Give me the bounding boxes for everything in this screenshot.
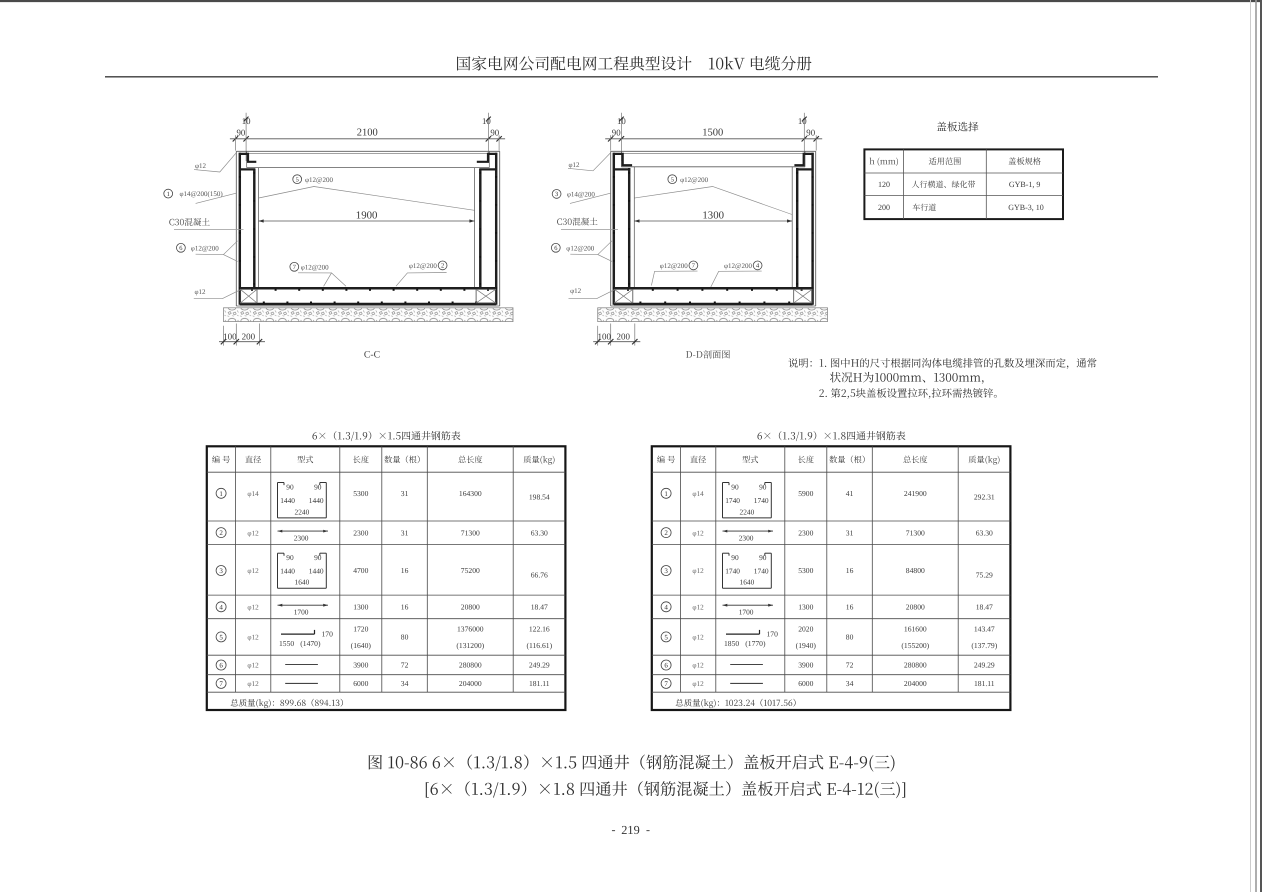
svg-text:1440: 1440 <box>280 567 295 576</box>
svg-text:(116.61): (116.61) <box>526 641 552 650</box>
svg-text:(1770): (1770) <box>745 639 766 648</box>
svg-text:10: 10 <box>617 116 626 126</box>
svg-text:90: 90 <box>731 482 739 491</box>
svg-text:(1470): (1470) <box>300 639 321 648</box>
svg-text:φ14: φ14 <box>247 490 259 498</box>
svg-text:φ12: φ12 <box>195 162 207 170</box>
svg-text:170: 170 <box>322 630 334 639</box>
svg-text:63.30: 63.30 <box>531 528 548 537</box>
svg-text:1700: 1700 <box>294 607 309 616</box>
svg-text:164300: 164300 <box>459 489 482 498</box>
svg-text:90: 90 <box>286 482 294 491</box>
svg-text:7: 7 <box>664 680 668 688</box>
svg-text:(1640): (1640) <box>351 641 372 650</box>
svg-text:241900: 241900 <box>904 489 927 498</box>
svg-text:90: 90 <box>314 553 322 562</box>
svg-text:10: 10 <box>482 116 491 126</box>
svg-text:84800: 84800 <box>906 566 925 575</box>
svg-text:280800: 280800 <box>459 661 482 670</box>
svg-text:5: 5 <box>219 633 223 641</box>
svg-text:31: 31 <box>401 528 409 537</box>
svg-text:143.47: 143.47 <box>974 624 995 633</box>
svg-text:219: 219 <box>621 823 639 837</box>
svg-text:249.29: 249.29 <box>974 661 995 670</box>
svg-text:1: 1 <box>664 490 668 498</box>
svg-text:2020: 2020 <box>798 624 813 633</box>
svg-text:φ12: φ12 <box>692 567 704 575</box>
svg-text:1720: 1720 <box>353 624 368 633</box>
svg-text:7: 7 <box>219 680 223 688</box>
svg-text:φ12: φ12 <box>692 634 704 642</box>
svg-text:φ14@200(150): φ14@200(150) <box>180 190 224 198</box>
svg-text:φ12@200: φ12@200 <box>724 262 752 270</box>
svg-text:1440: 1440 <box>309 496 324 505</box>
svg-text:6000: 6000 <box>798 679 813 688</box>
svg-text:4: 4 <box>219 603 223 611</box>
svg-text:5: 5 <box>664 633 668 641</box>
svg-text:90: 90 <box>237 127 246 137</box>
svg-text:φ12: φ12 <box>692 604 704 612</box>
svg-text:63.30: 63.30 <box>976 528 993 537</box>
svg-text:3: 3 <box>664 567 668 575</box>
svg-text:90: 90 <box>759 553 767 562</box>
svg-text:5: 5 <box>296 177 299 184</box>
svg-text:90: 90 <box>731 553 739 562</box>
svg-text:1900: 1900 <box>356 210 378 222</box>
svg-text:C-C: C-C <box>364 350 380 361</box>
svg-text:φ12@200: φ12@200 <box>660 262 688 270</box>
svg-text:φ12: φ12 <box>247 529 259 537</box>
svg-text:2300: 2300 <box>294 533 309 542</box>
svg-text:1640: 1640 <box>740 578 755 587</box>
svg-text:φ12: φ12 <box>247 634 259 642</box>
svg-text:φ12: φ12 <box>247 567 259 575</box>
svg-text:122.16: 122.16 <box>529 624 550 633</box>
svg-text:φ14@200: φ14@200 <box>567 190 595 198</box>
svg-text:100: 100 <box>223 332 237 342</box>
svg-text:2: 2 <box>219 529 223 537</box>
svg-text:120: 120 <box>878 180 890 189</box>
svg-text:80: 80 <box>846 633 854 642</box>
svg-text:1440: 1440 <box>280 496 295 505</box>
svg-text:φ12: φ12 <box>247 662 259 670</box>
svg-text:4: 4 <box>756 263 760 270</box>
svg-text:4700: 4700 <box>353 566 368 575</box>
svg-text:20800: 20800 <box>906 603 925 612</box>
svg-text:66.76: 66.76 <box>531 571 548 580</box>
svg-text:34: 34 <box>401 679 409 688</box>
svg-text:φ12: φ12 <box>247 604 259 612</box>
svg-text:20800: 20800 <box>461 603 480 612</box>
svg-text:41: 41 <box>846 489 854 498</box>
svg-text:71300: 71300 <box>461 528 480 537</box>
svg-text:6: 6 <box>664 662 668 670</box>
svg-text:1700: 1700 <box>739 607 754 616</box>
svg-text:31: 31 <box>401 489 409 498</box>
svg-text:7: 7 <box>692 263 696 270</box>
svg-text:204000: 204000 <box>459 679 482 688</box>
svg-text:φ12@200: φ12@200 <box>409 262 437 270</box>
svg-text:φ12: φ12 <box>692 662 704 670</box>
svg-text:3900: 3900 <box>798 661 813 670</box>
svg-text:31: 31 <box>846 528 854 537</box>
svg-text:75.29: 75.29 <box>976 571 993 580</box>
svg-text:1300: 1300 <box>702 210 724 222</box>
svg-text:2300: 2300 <box>353 528 368 537</box>
svg-text:(137.79): (137.79) <box>971 641 997 650</box>
svg-text:(131200): (131200) <box>456 641 484 650</box>
svg-text:GYB-1, 9: GYB-1, 9 <box>1009 180 1041 189</box>
svg-text:1: 1 <box>167 191 170 198</box>
svg-text:5: 5 <box>671 177 674 184</box>
svg-text:φ14: φ14 <box>692 490 704 498</box>
svg-text:5300: 5300 <box>798 566 813 575</box>
svg-text:2100: 2100 <box>357 127 378 138</box>
svg-text:1740: 1740 <box>754 567 769 576</box>
svg-text:90: 90 <box>490 127 499 137</box>
svg-text:1550: 1550 <box>279 639 294 648</box>
svg-text:1740: 1740 <box>725 567 740 576</box>
svg-text:3: 3 <box>219 567 223 575</box>
svg-text:φ12@200: φ12@200 <box>566 244 594 252</box>
svg-text:5300: 5300 <box>353 489 368 498</box>
svg-text:90: 90 <box>612 127 621 137</box>
svg-text:181.11: 181.11 <box>974 679 995 688</box>
svg-text:90: 90 <box>759 482 767 491</box>
svg-text:292.31: 292.31 <box>974 493 995 502</box>
svg-text:3900: 3900 <box>353 661 368 670</box>
svg-text:75200: 75200 <box>461 566 480 575</box>
svg-text:249.29: 249.29 <box>529 661 550 670</box>
svg-text:2: 2 <box>664 529 668 537</box>
svg-text:16: 16 <box>846 603 854 612</box>
svg-text:3: 3 <box>555 191 558 198</box>
svg-text:72: 72 <box>846 661 854 670</box>
svg-text:7: 7 <box>293 264 297 271</box>
svg-text:6: 6 <box>219 662 223 670</box>
svg-text:2: 2 <box>441 263 444 270</box>
svg-text:φ12: φ12 <box>247 680 259 688</box>
svg-text:2300: 2300 <box>739 533 754 542</box>
svg-text:φ12@200: φ12@200 <box>680 176 708 184</box>
svg-text:φ12@200: φ12@200 <box>305 176 333 184</box>
svg-text:2240: 2240 <box>295 507 310 516</box>
svg-text:10: 10 <box>242 116 251 126</box>
svg-text:90: 90 <box>286 553 294 562</box>
svg-text:φ12@200: φ12@200 <box>301 263 329 271</box>
svg-text:71300: 71300 <box>906 528 925 537</box>
svg-text:-: - <box>612 823 616 837</box>
svg-text:16: 16 <box>846 566 854 575</box>
svg-text:(155200): (155200) <box>901 641 929 650</box>
svg-text:1640: 1640 <box>295 578 310 587</box>
svg-text:(1940): (1940) <box>796 641 817 650</box>
svg-text:16: 16 <box>401 603 409 612</box>
svg-text:10: 10 <box>798 116 807 126</box>
svg-text:280800: 280800 <box>904 661 927 670</box>
svg-text:1300: 1300 <box>353 603 368 612</box>
svg-text:200: 200 <box>878 203 890 212</box>
svg-text:161600: 161600 <box>904 624 927 633</box>
svg-text:φ12: φ12 <box>568 161 580 169</box>
svg-text:204000: 204000 <box>904 679 927 688</box>
svg-text:1376000: 1376000 <box>457 624 484 633</box>
svg-text:4: 4 <box>664 603 668 611</box>
svg-text:16: 16 <box>401 566 409 575</box>
svg-text:GYB-3, 10: GYB-3, 10 <box>1008 203 1044 212</box>
svg-text:1500: 1500 <box>702 127 723 138</box>
svg-text:198.54: 198.54 <box>529 493 550 502</box>
svg-text:6: 6 <box>554 245 557 252</box>
svg-text:1: 1 <box>219 490 223 498</box>
svg-text:200: 200 <box>616 332 630 342</box>
svg-text:34: 34 <box>846 679 854 688</box>
svg-text:72: 72 <box>401 661 409 670</box>
svg-text:90: 90 <box>314 482 322 491</box>
svg-text:2300: 2300 <box>798 528 813 537</box>
svg-text:18.47: 18.47 <box>531 603 548 612</box>
svg-text:170: 170 <box>767 630 779 639</box>
svg-text:1740: 1740 <box>754 496 769 505</box>
svg-text:6: 6 <box>179 245 182 252</box>
svg-text:φ12@200: φ12@200 <box>191 244 219 252</box>
svg-text:φ12: φ12 <box>692 680 704 688</box>
svg-text:200: 200 <box>242 332 256 342</box>
svg-text:1300: 1300 <box>798 603 813 612</box>
svg-text:2240: 2240 <box>740 507 755 516</box>
svg-text:80: 80 <box>401 633 409 642</box>
svg-text:6000: 6000 <box>353 679 368 688</box>
svg-text:1440: 1440 <box>309 567 324 576</box>
svg-text:181.11: 181.11 <box>529 679 550 688</box>
svg-text:18.47: 18.47 <box>976 603 993 612</box>
svg-text:φ12: φ12 <box>194 288 206 296</box>
svg-text:1740: 1740 <box>725 496 740 505</box>
svg-text:90: 90 <box>806 127 815 137</box>
svg-text:φ12: φ12 <box>692 529 704 537</box>
svg-text:φ12: φ12 <box>570 287 582 295</box>
svg-text:5900: 5900 <box>798 489 813 498</box>
svg-text:1850: 1850 <box>724 639 739 648</box>
svg-text:100: 100 <box>597 332 611 342</box>
svg-text:-: - <box>646 823 650 837</box>
